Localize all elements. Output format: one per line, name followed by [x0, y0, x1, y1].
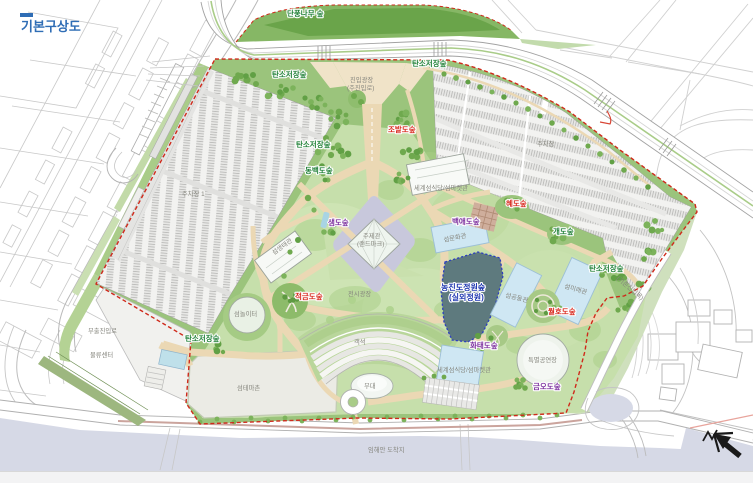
svg-text:(실외정원): (실외정원): [449, 292, 484, 302]
svg-text:부출진입로: 부출진입로: [88, 326, 117, 335]
svg-text:전시광장: 전시광장: [348, 289, 371, 298]
svg-text:탄소저장숲: 탄소저장숲: [272, 69, 307, 79]
svg-text:세계섬식당/섬마켓관: 세계섬식당/섬마켓관: [437, 365, 491, 374]
svg-text:탄소저장숲: 탄소저장숲: [185, 333, 220, 343]
svg-text:개도숲: 개도숲: [553, 226, 574, 236]
svg-text:섬놀이터: 섬놀이터: [234, 309, 257, 318]
svg-text:탄소저장숲: 탄소저장숲: [296, 139, 331, 149]
svg-text:금오도숲: 금오도숲: [533, 381, 561, 391]
svg-text:샘도숲: 샘도숲: [328, 217, 349, 227]
svg-text:적금도숲: 적금도숲: [295, 291, 323, 301]
svg-text:기본구상도: 기본구상도: [21, 19, 81, 34]
svg-text:단풍나무 숲: 단풍나무 숲: [287, 8, 324, 18]
svg-text:주제관: 주제관: [363, 231, 381, 240]
svg-text:월호도숲: 월호도숲: [548, 306, 576, 316]
svg-text:조발도숲: 조발도숲: [388, 124, 416, 134]
svg-text:특별공연장: 특별공연장: [528, 355, 557, 364]
svg-text:탄소저장숲: 탄소저장숲: [589, 263, 624, 273]
svg-text:혜도숲: 혜도숲: [506, 198, 527, 208]
svg-text:(주진입로): (주진입로): [347, 83, 374, 92]
svg-text:진입광장: 진입광장: [350, 75, 373, 84]
svg-text:탄소저장숲: 탄소저장숲: [412, 58, 447, 68]
svg-text:무대: 무대: [364, 382, 376, 390]
svg-text:섬테마촌: 섬테마촌: [237, 383, 260, 392]
svg-text:농진도정원숲: 농진도정원숲: [441, 282, 486, 292]
svg-text:동백도숲: 동백도숲: [305, 165, 333, 175]
svg-text:물류센터: 물류센터: [90, 350, 113, 359]
svg-text:객석: 객석: [354, 337, 366, 346]
svg-text:(랜드마크): (랜드마크): [357, 239, 384, 248]
svg-text:주차장 1: 주차장 1: [182, 189, 205, 198]
svg-text:백애도숲: 백애도숲: [452, 216, 480, 226]
svg-text:세계섬식당/섬마켓관: 세계섬식당/섬마켓관: [414, 183, 468, 192]
svg-text:임해안 도착지: 임해안 도착지: [368, 445, 405, 454]
svg-text:화태도숲: 화태도숲: [470, 340, 498, 350]
svg-text:주차장: 주차장: [537, 139, 555, 148]
